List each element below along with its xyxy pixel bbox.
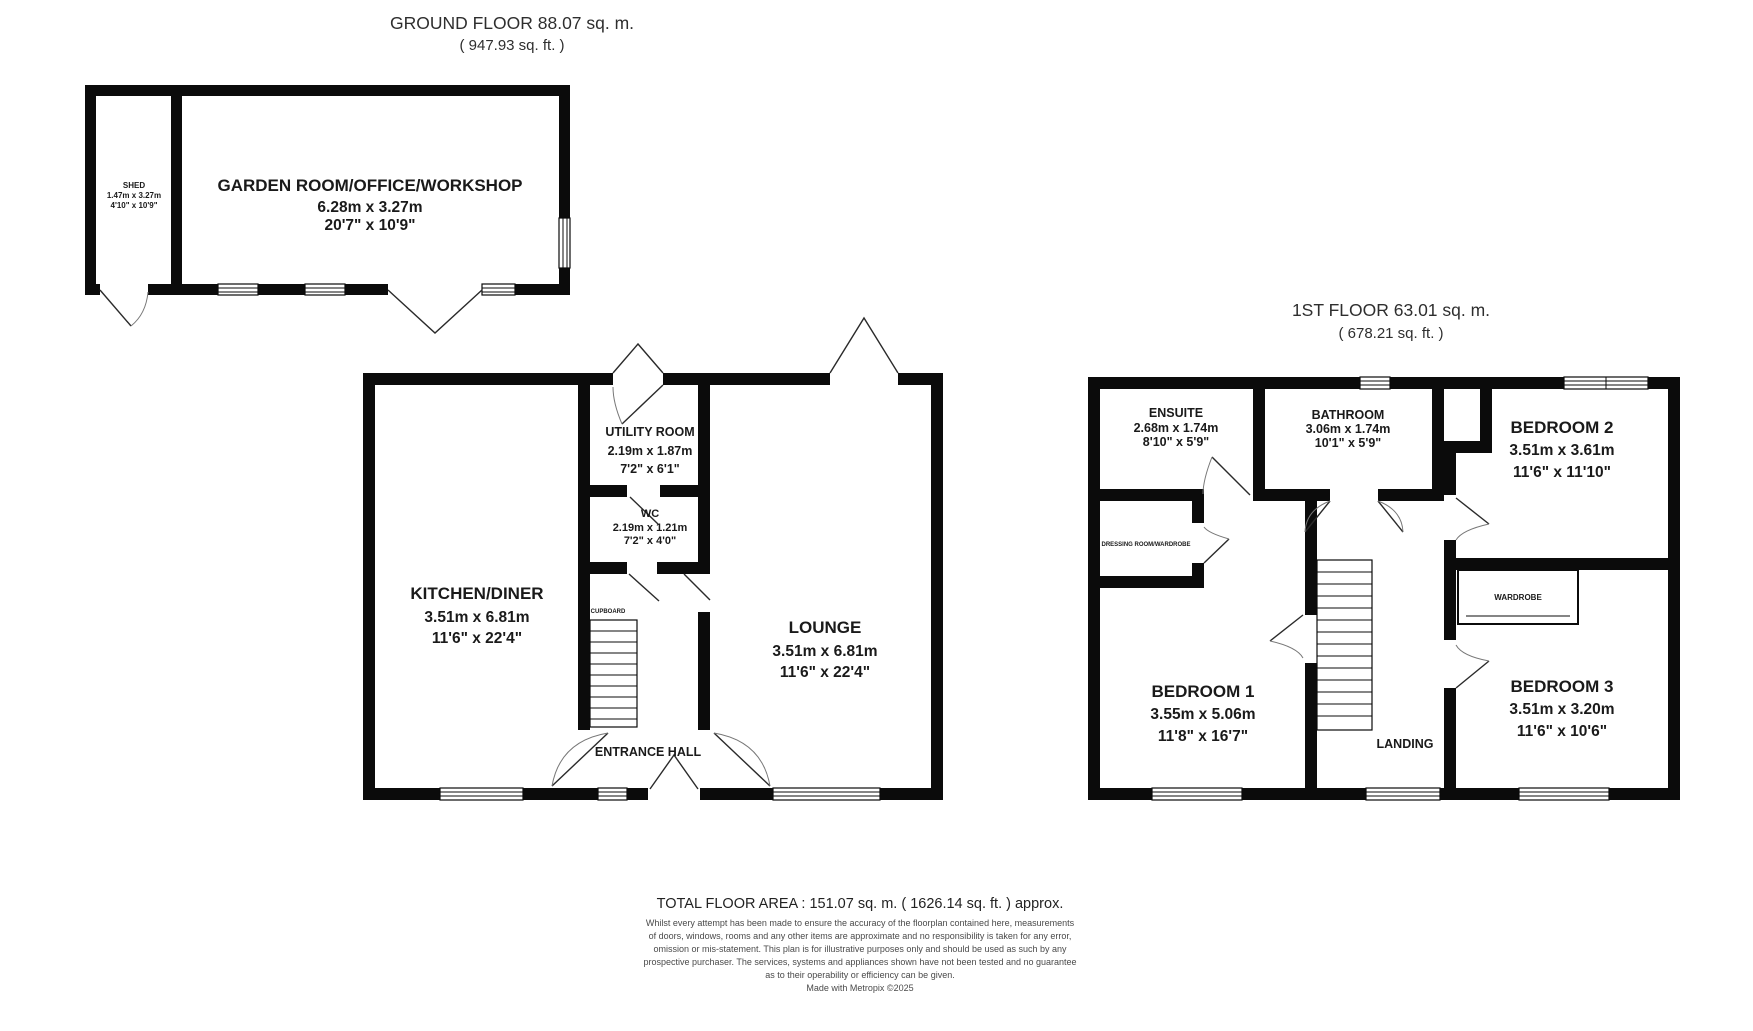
door-swing [1456, 498, 1489, 540]
room-name: BEDROOM 3 [1511, 677, 1614, 696]
room-imperial: 7'2" x 4'0" [624, 535, 676, 547]
wall [880, 788, 943, 800]
disclaimer-line: Whilst every attempt has been made to en… [646, 918, 1075, 928]
wall [1088, 788, 1152, 800]
wall [1253, 389, 1265, 501]
door-swing [1204, 527, 1229, 563]
wall [1668, 377, 1680, 800]
window [1152, 788, 1242, 800]
ground-floor-title: GROUND FLOOR 88.07 sq. m. [390, 13, 634, 33]
first-floor-subtitle: ( 678.21 sq. ft. ) [1338, 325, 1443, 342]
room-label-wc: WC 2.19m x 1.21m 7'2" x 4'0" [613, 508, 688, 547]
wall [931, 373, 943, 800]
room-name: UTILITY ROOM [605, 425, 694, 439]
wall [1100, 576, 1204, 588]
wall [171, 96, 182, 284]
door-swing [1203, 457, 1250, 495]
disclaimer-line: omission or mis-statement. This plan is … [653, 944, 1067, 954]
wall [85, 284, 100, 295]
room-imperial: 11'8" x 16'7" [1158, 728, 1248, 745]
ground-floor-building: KITCHEN/DINER 3.51m x 6.81m 11'6" x 22'4… [363, 318, 943, 800]
wall [627, 788, 648, 800]
room-imperial: 20'7" x 10'9" [324, 217, 415, 234]
window [1360, 377, 1390, 389]
window [1519, 788, 1609, 800]
room-metric: 2.68m x 1.74m [1134, 421, 1219, 435]
wall [363, 373, 613, 385]
footer: TOTAL FLOOR AREA : 151.07 sq. m. ( 1626.… [643, 896, 1076, 993]
window [1366, 788, 1440, 800]
room-label-bedroom1: BEDROOM 1 3.55m x 5.06m 11'8" x 16'7" [1150, 682, 1255, 745]
room-imperial: 11'6" x 22'4" [780, 664, 870, 681]
door-swing [629, 574, 659, 601]
wall [1305, 663, 1317, 788]
wall [590, 562, 627, 574]
wall [578, 385, 590, 730]
wall [85, 85, 96, 295]
room-label-cupboard: CUPBOARD [591, 609, 626, 615]
wall [363, 788, 440, 800]
door-swing [100, 290, 148, 326]
garden-building: SHED 1.47m x 3.27m 4'10" x 10'9" GARDEN … [85, 85, 570, 333]
wall [898, 373, 943, 385]
room-name: LOUNGE [789, 618, 862, 637]
room-imperial: 4'10" x 10'9" [111, 201, 158, 210]
room-imperial: 8'10" x 5'9" [1143, 435, 1210, 449]
wall [1440, 788, 1519, 800]
room-metric: 3.55m x 5.06m [1150, 706, 1255, 723]
wall [1444, 558, 1668, 570]
window [440, 788, 523, 800]
window [482, 284, 515, 295]
room-metric: 2.19m x 1.21m [613, 522, 688, 534]
room-metric: 2.19m x 1.87m [608, 444, 693, 458]
first-floor-title-block: 1ST FLOOR 63.01 sq. m. ( 678.21 sq. ft. … [1292, 300, 1490, 342]
window [598, 788, 627, 800]
front-door [650, 755, 698, 789]
room-metric: 3.51m x 6.81m [424, 609, 529, 626]
room-label-bathroom: BATHROOM 3.06m x 1.74m 10'1" x 5'9" [1306, 408, 1391, 450]
wall [698, 385, 710, 574]
staircase [590, 620, 637, 727]
wall [657, 562, 698, 574]
floorplan-canvas: GROUND FLOOR 88.07 sq. m. ( 947.93 sq. f… [0, 0, 1753, 1031]
wall [1390, 377, 1564, 389]
room-metric: 3.51m x 3.61m [1509, 442, 1614, 459]
staircase [1317, 560, 1372, 730]
wall [698, 612, 710, 730]
wall [1432, 389, 1444, 501]
room-imperial: 7'2" x 6'1" [620, 462, 680, 476]
room-name: GARDEN ROOM/OFFICE/WORKSHOP [217, 176, 522, 195]
room-name: ENSUITE [1149, 406, 1203, 420]
ground-floor-subtitle: ( 947.93 sq. ft. ) [459, 37, 564, 54]
door-swing [684, 574, 710, 600]
wall [1305, 489, 1317, 615]
room-label-entrance-hall: ENTRANCE HALL [595, 745, 702, 759]
wall [363, 373, 375, 800]
door-swing [552, 733, 608, 786]
total-floor-area: TOTAL FLOOR AREA : 151.07 sq. m. ( 1626.… [657, 896, 1064, 912]
room-label-shed: SHED 1.47m x 3.27m 4'10" x 10'9" [107, 181, 161, 210]
room-label-bedroom3: BEDROOM 3 3.51m x 3.20m 11'6" x 10'6" [1509, 677, 1614, 740]
wall [515, 284, 570, 295]
first-floor-building: ENSUITE 2.68m x 1.74m 8'10" x 5'9" BATHR… [1088, 377, 1680, 800]
room-imperial: 10'1" x 5'9" [1315, 436, 1382, 450]
room-label-lounge: LOUNGE 3.51m x 6.81m 11'6" x 22'4" [772, 618, 877, 681]
wall [1609, 788, 1680, 800]
wall [1444, 688, 1456, 788]
wall [523, 788, 598, 800]
wall [1100, 489, 1203, 501]
door-swing [714, 733, 770, 786]
wall [85, 85, 570, 96]
door-swing [1305, 501, 1403, 532]
french-doors [830, 318, 898, 373]
room-label-bedroom2: BEDROOM 2 3.51m x 3.61m 11'6" x 11'10" [1509, 418, 1614, 481]
window [218, 284, 258, 295]
room-imperial: 11'6" x 10'6" [1517, 723, 1607, 740]
room-metric: 1.47m x 3.27m [107, 191, 161, 200]
room-name: SHED [123, 181, 145, 190]
wall [700, 788, 773, 800]
room-label-kitchen-diner: KITCHEN/DINER 3.51m x 6.81m 11'6" x 22'4… [410, 584, 543, 647]
room-metric: 3.51m x 6.81m [772, 643, 877, 660]
wall [1192, 489, 1204, 523]
room-metric: 3.06m x 1.74m [1306, 422, 1391, 436]
wall [258, 284, 305, 295]
door-swing [1456, 645, 1489, 688]
wall [1242, 788, 1366, 800]
room-imperial: 11'6" x 22'4" [432, 630, 522, 647]
disclaimer-line: of doors, windows, rooms and any other i… [649, 931, 1072, 941]
window [1564, 377, 1648, 389]
room-name: BEDROOM 2 [1511, 418, 1614, 437]
room-label-landing: LANDING [1377, 737, 1434, 751]
room-name: BEDROOM 1 [1152, 682, 1255, 701]
wall [660, 485, 698, 497]
room-name: BATHROOM [1312, 408, 1385, 422]
credit-line: Made with Metropix ©2025 [806, 983, 913, 993]
room-imperial: 11'6" x 11'10" [1513, 464, 1611, 481]
disclaimer-line: as to their operability or efficiency ca… [765, 970, 954, 980]
wall [1444, 441, 1492, 453]
wall [1444, 540, 1456, 640]
window [305, 284, 345, 295]
wall [1648, 377, 1680, 389]
room-name: KITCHEN/DINER [410, 584, 543, 603]
wall [663, 373, 830, 385]
room-metric: 6.28m x 3.27m [317, 199, 422, 216]
double-door [388, 290, 482, 333]
room-label-utility: UTILITY ROOM 2.19m x 1.87m 7'2" x 6'1" [605, 425, 694, 476]
room-label-garden-room: GARDEN ROOM/OFFICE/WORKSHOP 6.28m x 3.27… [217, 176, 522, 234]
wall [1444, 453, 1456, 495]
ground-floor-title-block: GROUND FLOOR 88.07 sq. m. ( 947.93 sq. f… [390, 13, 634, 54]
window [559, 218, 570, 268]
wall [148, 284, 218, 295]
door-swing [613, 344, 663, 424]
wall [590, 485, 627, 497]
wall [1265, 489, 1330, 501]
wall [345, 284, 388, 295]
wall [1088, 377, 1360, 389]
disclaimer-line: prospective purchaser. The services, sys… [643, 957, 1076, 967]
room-metric: 3.51m x 3.20m [1509, 701, 1614, 718]
room-label-wardrobe: WARDROBE [1494, 593, 1542, 602]
door-swing [1270, 615, 1303, 658]
wall [1088, 377, 1100, 800]
window [773, 788, 880, 800]
first-floor-title: 1ST FLOOR 63.01 sq. m. [1292, 300, 1490, 320]
room-label-ensuite: ENSUITE 2.68m x 1.74m 8'10" x 5'9" [1134, 406, 1219, 449]
room-name: WC [641, 508, 659, 520]
room-label-dressing: DRESSING ROOM/WARDROBE [1101, 542, 1190, 548]
